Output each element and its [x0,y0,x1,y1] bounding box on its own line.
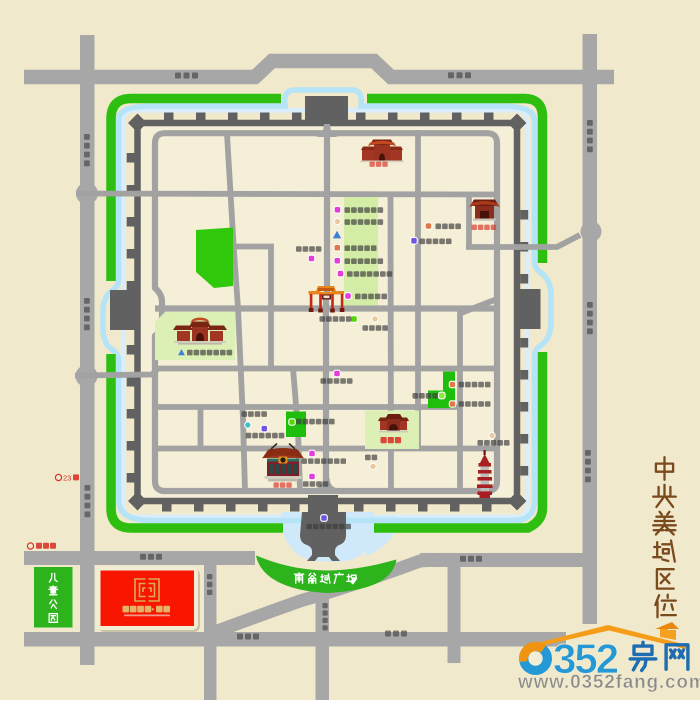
svg-text:23: 23 [63,474,71,483]
svg-text:www.0352fang.com: www.0352fang.com [517,672,700,693]
